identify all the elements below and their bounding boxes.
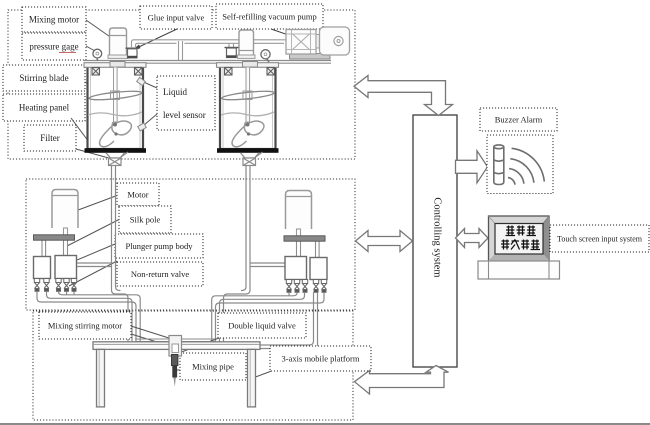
svg-text:3-axis mobile platform: 3-axis mobile platform bbox=[282, 354, 360, 364]
svg-text:Double liquid valve: Double liquid valve bbox=[228, 321, 296, 331]
svg-text:Mixing pipe: Mixing pipe bbox=[192, 362, 234, 372]
svg-text:pressure gage: pressure gage bbox=[29, 42, 78, 52]
svg-text:Liquid: Liquid bbox=[163, 87, 187, 97]
svg-text:Touch screen input system: Touch screen input system bbox=[557, 235, 643, 244]
svg-text:Self-refilling vacuum pump: Self-refilling vacuum pump bbox=[222, 12, 316, 22]
svg-text:Mixing stirring motor: Mixing stirring motor bbox=[48, 321, 122, 331]
svg-text:Plunger pump body: Plunger pump body bbox=[125, 241, 193, 251]
svg-text:Controlling system: Controlling system bbox=[432, 197, 443, 277]
svg-text:Non-return valve: Non-return valve bbox=[131, 269, 190, 279]
svg-text:Motor: Motor bbox=[127, 190, 148, 200]
svg-text:Buzzer Alarm: Buzzer Alarm bbox=[495, 115, 543, 125]
svg-text:Heating panel: Heating panel bbox=[19, 103, 70, 113]
svg-text:Filter: Filter bbox=[40, 133, 60, 143]
svg-text:Stirring blade: Stirring blade bbox=[19, 73, 68, 83]
svg-text:Silk pole: Silk pole bbox=[130, 215, 161, 225]
svg-text:Mixing motor: Mixing motor bbox=[29, 15, 79, 25]
svg-text:level sensor: level sensor bbox=[163, 110, 206, 120]
svg-text:Glue input valve: Glue input valve bbox=[148, 13, 205, 23]
